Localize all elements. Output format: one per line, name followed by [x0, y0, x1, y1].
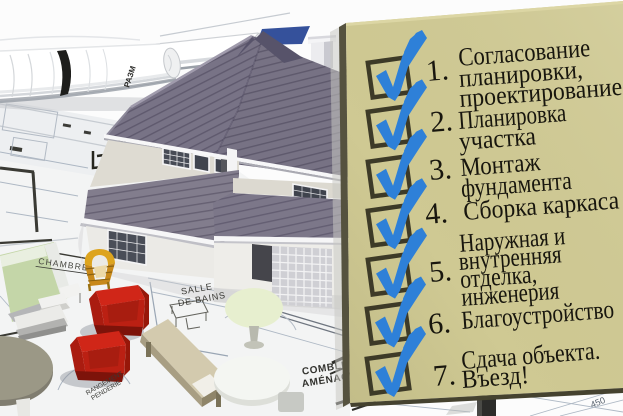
svg-text:2.: 2.	[429, 104, 454, 139]
svg-text:6.: 6.	[427, 306, 452, 341]
svg-text:5.: 5.	[428, 254, 453, 289]
svg-text:Въезд!: Въезд!	[461, 360, 530, 394]
svg-text:4.: 4.	[424, 196, 449, 231]
svg-text:1.: 1.	[425, 53, 450, 88]
svg-text:7.: 7.	[432, 358, 457, 393]
svg-text:3.: 3.	[428, 152, 453, 187]
